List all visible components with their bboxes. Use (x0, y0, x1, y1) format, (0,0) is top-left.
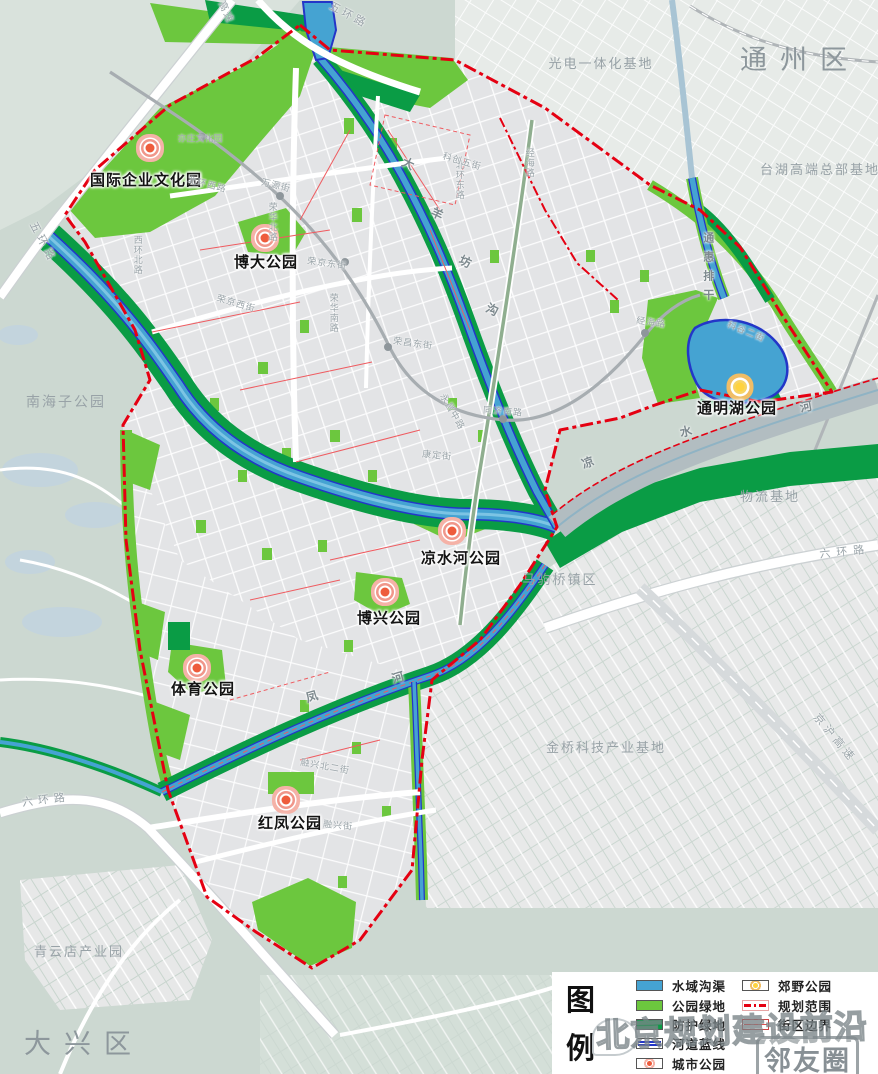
legend-column-left: 水域沟渠公园绿地防护绿地河道蓝线城市公园 (636, 976, 726, 1073)
legend-item-label: 城市公园 (672, 1054, 726, 1073)
legend-item: 城市公园 (636, 1054, 726, 1073)
shelter-green-swatch-icon (636, 1019, 663, 1030)
legend-item-label: 规划范围 (778, 996, 832, 1015)
country-park-swatch-icon (742, 980, 769, 991)
legend: 图例 水域沟渠公园绿地防护绿地河道蓝线城市公园 郊野公园规划范围街区边界 (552, 972, 878, 1074)
legend-title: 图例 (566, 977, 595, 1067)
legend-item-label: 公园绿地 (672, 996, 726, 1015)
block-boundary-swatch-icon (742, 1019, 769, 1030)
park-green-swatch-icon (636, 1000, 663, 1011)
legend-column-right: 郊野公园规划范围街区边界 (742, 976, 832, 1034)
legend-item-label: 街区边界 (778, 1015, 832, 1034)
city-park-swatch-icon (636, 1058, 663, 1069)
legend-item: 防护绿地 (636, 1015, 726, 1034)
legend-item: 公园绿地 (636, 995, 726, 1014)
legend-item: 水域沟渠 (636, 976, 726, 995)
plan-boundary-swatch-icon (742, 1000, 769, 1011)
legend-item: 街区边界 (742, 1015, 832, 1034)
legend-title-char: 例 (566, 1025, 595, 1067)
legend-item-label: 防护绿地 (672, 1015, 726, 1034)
legend-title-char: 图 (566, 977, 595, 1019)
legend-item-label: 水域沟渠 (672, 976, 726, 995)
legend-item-label: 河道蓝线 (672, 1034, 726, 1053)
map-canvas (0, 0, 878, 1074)
legend-item-label: 郊野公园 (778, 976, 832, 995)
planning-map: 通州区大兴区光电一体化基地台湖高端总部基地南海子公园物流基地马驹桥镇区金桥科技产… (0, 0, 878, 1074)
water-swatch-icon (636, 980, 663, 991)
legend-item: 河道蓝线 (636, 1034, 726, 1053)
legend-item: 规划范围 (742, 995, 832, 1014)
legend-item: 郊野公园 (742, 976, 832, 995)
blue-line-swatch-icon (636, 1038, 663, 1049)
